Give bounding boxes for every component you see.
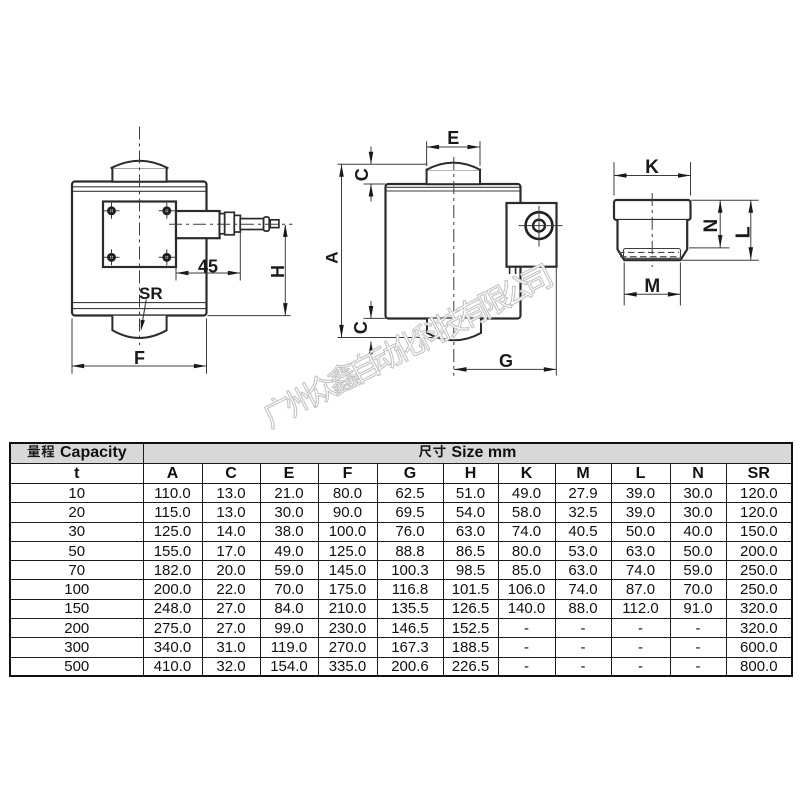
svg-text:K: K [645,157,659,178]
svg-text:H: H [268,265,288,278]
svg-text:C: C [352,168,372,181]
svg-text:L: L [732,226,754,238]
svg-text:E: E [447,128,459,148]
svg-text:G: G [499,351,513,371]
svg-text:M: M [644,276,660,297]
svg-text:A: A [323,251,342,263]
svg-text:45: 45 [198,256,218,276]
svg-text:N: N [701,219,722,233]
svg-text:C: C [351,321,371,334]
svg-text:SR: SR [139,284,163,303]
svg-text:F: F [134,348,145,368]
